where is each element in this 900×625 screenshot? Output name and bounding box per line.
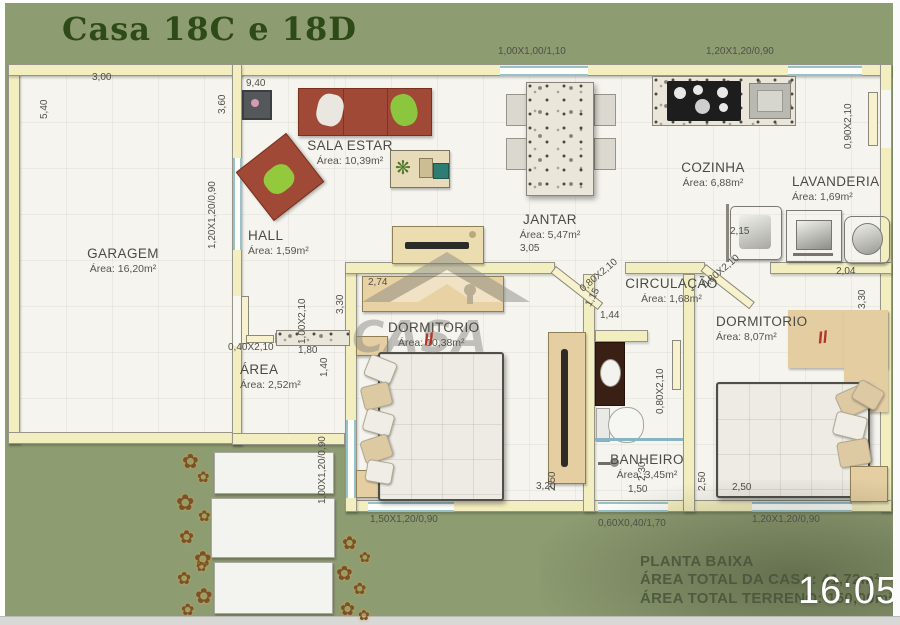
floor-plan-page: ❋ <box>0 0 900 625</box>
sofa-seam <box>343 89 344 135</box>
side-table <box>242 90 272 120</box>
dimension-label: 2,50 <box>732 482 751 493</box>
brand-mark: Il <box>817 328 828 349</box>
leaf-pillow <box>387 91 421 129</box>
paving-slab <box>211 498 335 558</box>
dimension-label: 1,00X1,20/0,90 <box>317 436 328 504</box>
room-label-hall: HALL Área: 1,59m² <box>248 228 338 258</box>
dimension-label: 1,80 <box>298 345 317 356</box>
window-bedroom2 <box>752 502 852 512</box>
room-label-dormitorio1: DORMITORIO Área: 10,38m² <box>388 320 498 350</box>
dining-chair <box>506 138 528 170</box>
flower-icon: ✿ <box>176 492 194 514</box>
dimension-label: 1,20X1,20/0,90 <box>207 181 218 249</box>
dining-chair <box>594 94 616 126</box>
pillow <box>836 437 872 468</box>
dimension-label: 2,04 <box>836 266 855 277</box>
dimension-label: 2,50 <box>547 472 558 491</box>
dimension-label: 0,80X2,10 <box>655 368 666 414</box>
flower-icon: ✿ <box>358 608 370 622</box>
washer-panel <box>793 253 833 256</box>
laundry-door <box>868 92 878 146</box>
dimension-label: 1,44 <box>600 310 619 321</box>
page-edge <box>893 0 900 625</box>
room-label-dormitorio2: DORMITORIO Área: 8,07m² <box>716 314 826 344</box>
kitchen-counter <box>652 76 796 126</box>
shower-divider <box>595 438 683 441</box>
bath-sink <box>600 359 621 387</box>
nightstand <box>850 466 888 502</box>
washer-door <box>796 220 832 250</box>
page-edge <box>0 616 900 625</box>
dimension-label: 2,30 <box>637 462 648 481</box>
pillow <box>364 459 394 485</box>
flower-icon: ✿ <box>342 534 357 552</box>
bathroom-door <box>672 340 681 390</box>
bath-vanity <box>595 342 625 406</box>
dimension-label: 1,50 <box>628 484 647 495</box>
dimension-label: 3,05 <box>520 243 539 254</box>
window-bedroom1-side <box>346 420 356 498</box>
summary-line1: PLANTA BAIXA <box>640 553 894 571</box>
window-kitchen <box>788 66 862 76</box>
sofa-seam <box>387 89 388 135</box>
dimension-label: 1,50X1,20/0,90 <box>370 514 438 525</box>
dimension-label: 2,74 <box>368 277 387 288</box>
sofa <box>298 88 432 136</box>
laundry-divider <box>726 204 729 262</box>
garage-left-wall <box>8 64 20 444</box>
dining-chair <box>506 94 528 126</box>
flower-icon: ✿ <box>197 470 210 485</box>
dimension-label: 0,90X2,10 <box>843 103 854 149</box>
vase-icon <box>251 99 259 107</box>
dining-table <box>526 82 594 196</box>
window-dining <box>500 66 588 76</box>
dimension-label: 1,00X2,10 <box>297 298 308 344</box>
dimension-label: 2,50 <box>697 472 708 491</box>
window-bathroom <box>598 502 668 512</box>
bedroom1-wardrobe <box>548 332 586 484</box>
flower-icon: ✿ <box>340 600 355 618</box>
dimension-label: 3,30 <box>335 295 346 314</box>
cooktop <box>667 81 741 121</box>
burner <box>695 99 710 114</box>
bed-1 <box>378 352 504 501</box>
flower-icon: ✿ <box>179 528 194 546</box>
dimension-label: 1,20X1,20/0,90 <box>706 46 774 57</box>
paving-slab <box>214 562 333 614</box>
sideboard <box>392 226 484 264</box>
appliance-lid <box>852 223 883 255</box>
dimension-label: 9,40 <box>246 78 265 89</box>
bath-top-wall <box>595 330 648 342</box>
throw-blanket <box>314 92 346 129</box>
dimension-label: 1,00X1,00/1,10 <box>498 46 566 57</box>
burner <box>693 85 703 95</box>
burner <box>717 87 728 98</box>
garage-top-wall <box>8 64 242 76</box>
kitchen-sink <box>749 83 791 119</box>
hall-door-gap <box>233 296 241 346</box>
garage-bottom-wall <box>8 432 242 444</box>
room-label-lavanderia: LAVANDERIA Área: 1,69m² <box>792 174 892 204</box>
dimension-label: 3,00 <box>92 72 111 83</box>
dimension-label: 3,30 <box>857 290 868 309</box>
burner <box>719 103 728 112</box>
round-appliance <box>844 216 890 264</box>
flower-icon: ✿ <box>336 564 353 584</box>
wardrobe-rail <box>561 349 568 467</box>
burner <box>674 87 686 99</box>
dimension-label: 3,60 <box>217 95 228 114</box>
dimension-label: 0,60X0,40/1,70 <box>598 518 666 529</box>
dining-chair <box>594 138 616 170</box>
flower-icon: ✿ <box>353 582 366 598</box>
paving-slab <box>214 452 334 494</box>
room-label-area: ÁREA Área: 2,52m² <box>240 362 330 392</box>
service-tank <box>276 330 350 346</box>
room-label-cozinha: COZINHA Área: 6,88m² <box>668 160 758 190</box>
brand-mark: Il <box>423 330 434 351</box>
dimension-label: 0,40X2,10 <box>228 342 274 353</box>
dimension-label: 1,20X1,20/0,90 <box>752 514 820 525</box>
window-bedroom1 <box>368 502 454 512</box>
dimension-label: 1,40 <box>319 358 330 377</box>
sink-basin <box>757 90 783 112</box>
flower-icon: ✿ <box>198 509 211 524</box>
mid-wall-b <box>625 262 705 274</box>
sideboard-strip <box>405 242 469 249</box>
knob <box>469 231 476 238</box>
book-teal <box>433 163 449 179</box>
service-bottom-wall <box>232 433 345 445</box>
clock-overlay: 16:05 <box>798 570 898 613</box>
flower-icon: ✿ <box>181 603 194 619</box>
dimension-label: 5,40 <box>39 100 50 119</box>
flower-icon: ✿ <box>359 550 371 564</box>
washing-machine <box>786 210 842 262</box>
flower-icon: ✿ <box>177 570 191 587</box>
dimension-label: 2,15 <box>730 226 749 237</box>
book <box>419 158 433 178</box>
flower-icon: ✿ <box>196 560 207 573</box>
page-title: Casa 18C e 18D <box>62 10 357 48</box>
room-label-garagem: GARAGEM Área: 16,20m² <box>58 246 188 276</box>
room-label-jantar: JANTAR Área: 5,47m² <box>505 212 595 242</box>
room-label-sala: SALA ESTAR Área: 10,39m² <box>290 138 410 168</box>
flower-icon: ✿ <box>195 586 213 607</box>
laundry-door-gap <box>881 90 891 148</box>
